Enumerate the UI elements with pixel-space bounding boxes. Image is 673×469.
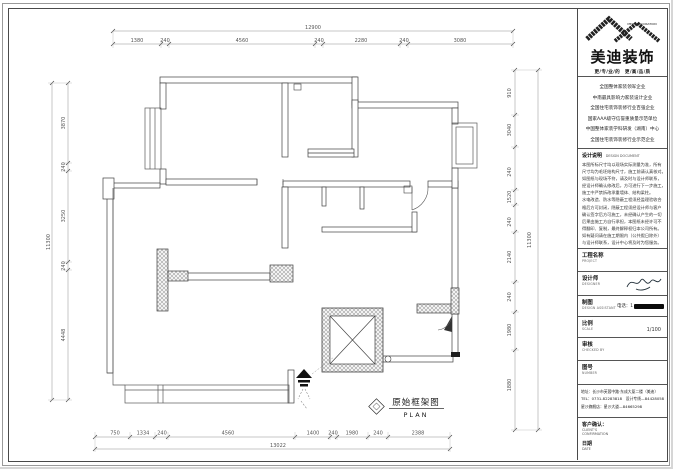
design-notes: 设计说明 DESIGN DOCUMENT 本图所标尺寸均以现场实际测量为准，所有…	[578, 149, 667, 249]
scale-value: 1/100	[647, 327, 661, 333]
dim-label: 240	[314, 38, 324, 44]
dim-label: 240	[507, 167, 513, 177]
address-line: TEL：0731-82283818 设计专线—84428058	[581, 395, 664, 402]
note-line: 得翻印、复制，最终解释权归本公司所有。	[582, 225, 663, 232]
floor-plan: 12900 1380 240 4560 240 2280 240 3080 11…	[8, 8, 576, 460]
dim-right-labels: 11300 910 3040 240 1520 240 2140 240 198…	[507, 88, 533, 391]
dim-label: 2388	[412, 431, 425, 437]
walls	[103, 77, 458, 403]
plan-title-cn: 原始框架图	[392, 397, 440, 408]
check-label: 审核	[582, 340, 663, 348]
note-line: 与设计师联系，设计中心将及时为您服务。	[582, 239, 663, 246]
dim-label: 3250	[61, 210, 67, 223]
scale-label: 比例	[582, 319, 663, 327]
dim-label: 1380	[131, 38, 144, 44]
dim-label: 11300	[46, 234, 52, 250]
dim-label: 3040	[507, 124, 513, 137]
phone-label: 电话：1	[617, 303, 633, 309]
dim-label: 2140	[507, 251, 513, 264]
note-line: 施工中严禁拆改承重墙体、结构梁柱。	[582, 189, 663, 196]
logo-brand-en: MEIDI DECORATION	[625, 23, 659, 27]
dim-label: 1520	[507, 191, 513, 204]
drafter-row: 制图 DESIGN ASSISTANT 电话：1	[578, 296, 667, 317]
dim-label: 240	[160, 38, 170, 44]
bay-window-left-icon	[145, 108, 161, 169]
dim-label: 1980	[346, 431, 359, 437]
dim-label: 240	[507, 292, 513, 302]
dim-label: 4560	[222, 431, 235, 437]
dim-left-labels: 11300 3870 240 3250 240 4448	[46, 117, 67, 342]
dim-label: 240	[399, 38, 409, 44]
credential-line: 国家AAA级守信誉重质量示范单位	[578, 115, 667, 126]
phone-redaction	[634, 304, 664, 309]
dim-label: 2280	[355, 38, 368, 44]
dim-label: 1880	[507, 379, 513, 392]
note-line: 确认签字后方可施工，未经确认产生的一切	[582, 211, 663, 218]
dim-right	[511, 68, 542, 432]
dim-label: 240	[61, 261, 67, 271]
dim-label: 3870	[61, 117, 67, 130]
dim-label: 4560	[236, 38, 249, 44]
company-logo: MEIDI DECORATION 美迪装饰 更/专/业/的 更/高/品/质	[578, 9, 667, 77]
project-label-en: PROJECT	[582, 259, 663, 263]
date-label-en: DATE	[582, 447, 663, 451]
check-row: 审核 CHECKED BY	[578, 338, 667, 361]
number-label-en: NUMBER	[582, 371, 663, 375]
notes-heading: 设计说明	[582, 153, 602, 159]
client-confirmation-block: 客户确认： CLIENT'S CONFIRMATION 日期 DATE	[578, 418, 667, 460]
client-confirm-label: 客户确认：	[582, 421, 663, 428]
logo-tagline: 更/专/业/的 更/高/品/质	[578, 69, 667, 75]
number-label: 图号	[582, 363, 663, 371]
dim-bottom-labels: 13022 750 1334 240 4560 1400 240 1980 24…	[110, 431, 424, 450]
elevator-shaft	[322, 308, 391, 372]
credential-line: 中南最具影响力家装设计企业	[578, 94, 667, 105]
client-confirm-en2: CONFIRMATION	[582, 432, 663, 436]
project-label: 工程名称	[582, 251, 663, 259]
plan-title-en: PLAN	[404, 411, 429, 419]
plan-title: 原始框架图 PLAN	[369, 397, 444, 419]
note-line: 水电改造、防水等隐蔽工程须经监理验收合	[582, 196, 663, 203]
dim-label: 13022	[270, 443, 286, 449]
address-line: 星沙旗舰店：星沙大道—84665298	[581, 403, 664, 410]
credential-line: 中国整体家装学科研发（湖南）中心	[578, 125, 667, 136]
dim-label: 240	[373, 431, 383, 437]
diamond-ornament-icon	[369, 399, 385, 415]
address-line: 地址：长沙市芙蓉中路·东成大厦二楼（美迪）	[581, 388, 664, 395]
note-line: 如有疑问请在施工期限内（公共假日除外）	[582, 232, 663, 239]
dim-label: 750	[110, 431, 120, 437]
dim-label: 11300	[527, 232, 533, 248]
dim-label: 1400	[307, 431, 320, 437]
dim-label: 4448	[61, 329, 67, 342]
note-line: 格后方可封闭，隐蔽工程须经设计师与客户	[582, 204, 663, 211]
designer-signature	[624, 274, 664, 292]
notes-heading-en: DESIGN DOCUMENT	[606, 154, 640, 158]
dim-label: 3080	[454, 38, 467, 44]
logo-brand: 美迪装饰	[578, 46, 667, 67]
dim-label: 240	[157, 431, 167, 437]
balcony	[107, 188, 289, 403]
dim-label: 240	[61, 162, 67, 172]
note-line: 经设计师确认修改后，方可进行下一步施工，	[582, 182, 663, 189]
dim-label: 1980	[507, 324, 513, 337]
credential-line: 全国整体家装领军企业	[578, 83, 667, 94]
dim-top-labels: 12900 1380 240 4560 240 2280 240 3080	[131, 25, 467, 44]
note-line: 本图所标尺寸均以现场实际测量为准，所有	[582, 161, 663, 168]
number-row: 图号 NUMBER	[578, 361, 667, 385]
note-line: 尺寸均为毛坯结构尺寸，施工前请认真核对。	[582, 168, 663, 175]
project-row: 工程名称 PROJECT	[578, 249, 667, 272]
credential-line: 全国住宅装饰装修行业示范企业	[578, 136, 667, 147]
dim-label: 910	[507, 88, 513, 98]
note-line: 后果由施工方自行承担，本图纸未经许可不	[582, 218, 663, 225]
credential-line: 全国住宅装饰装修行业百强企业	[578, 104, 667, 115]
wall-end-cap	[451, 352, 460, 357]
logo-roof-icon	[581, 12, 665, 44]
structural-walls	[157, 249, 459, 314]
address-block: 地址：长沙市芙蓉中路·东成大厦二楼（美迪） TEL：0731-82283818 …	[578, 385, 667, 418]
credentials-list: 全国整体家装领军企业 中南最具影响力家装设计企业 全国住宅装饰装修行业百强企业 …	[578, 77, 667, 149]
dim-label: 12900	[305, 25, 321, 31]
dim-label: 1334	[137, 431, 150, 437]
dim-label: 240	[507, 217, 513, 227]
check-label-en: CHECKED BY	[582, 348, 663, 352]
designer-row: 设计师 DESIGNER	[578, 272, 667, 296]
date-label: 日期	[582, 440, 663, 447]
bay-window-right-icon	[452, 123, 477, 168]
drawing-sheet: 12900 1380 240 4560 240 2280 240 3080 11…	[0, 0, 671, 467]
note-line: 如图纸与现场不符，请及时与设计师联系，	[582, 175, 663, 182]
scale-row: 比例 SCALE 1/100	[578, 317, 667, 338]
title-block: MEIDI DECORATION 美迪装饰 更/专/业/的 更/高/品/质 全国…	[577, 9, 667, 460]
dim-label: 240	[328, 431, 338, 437]
